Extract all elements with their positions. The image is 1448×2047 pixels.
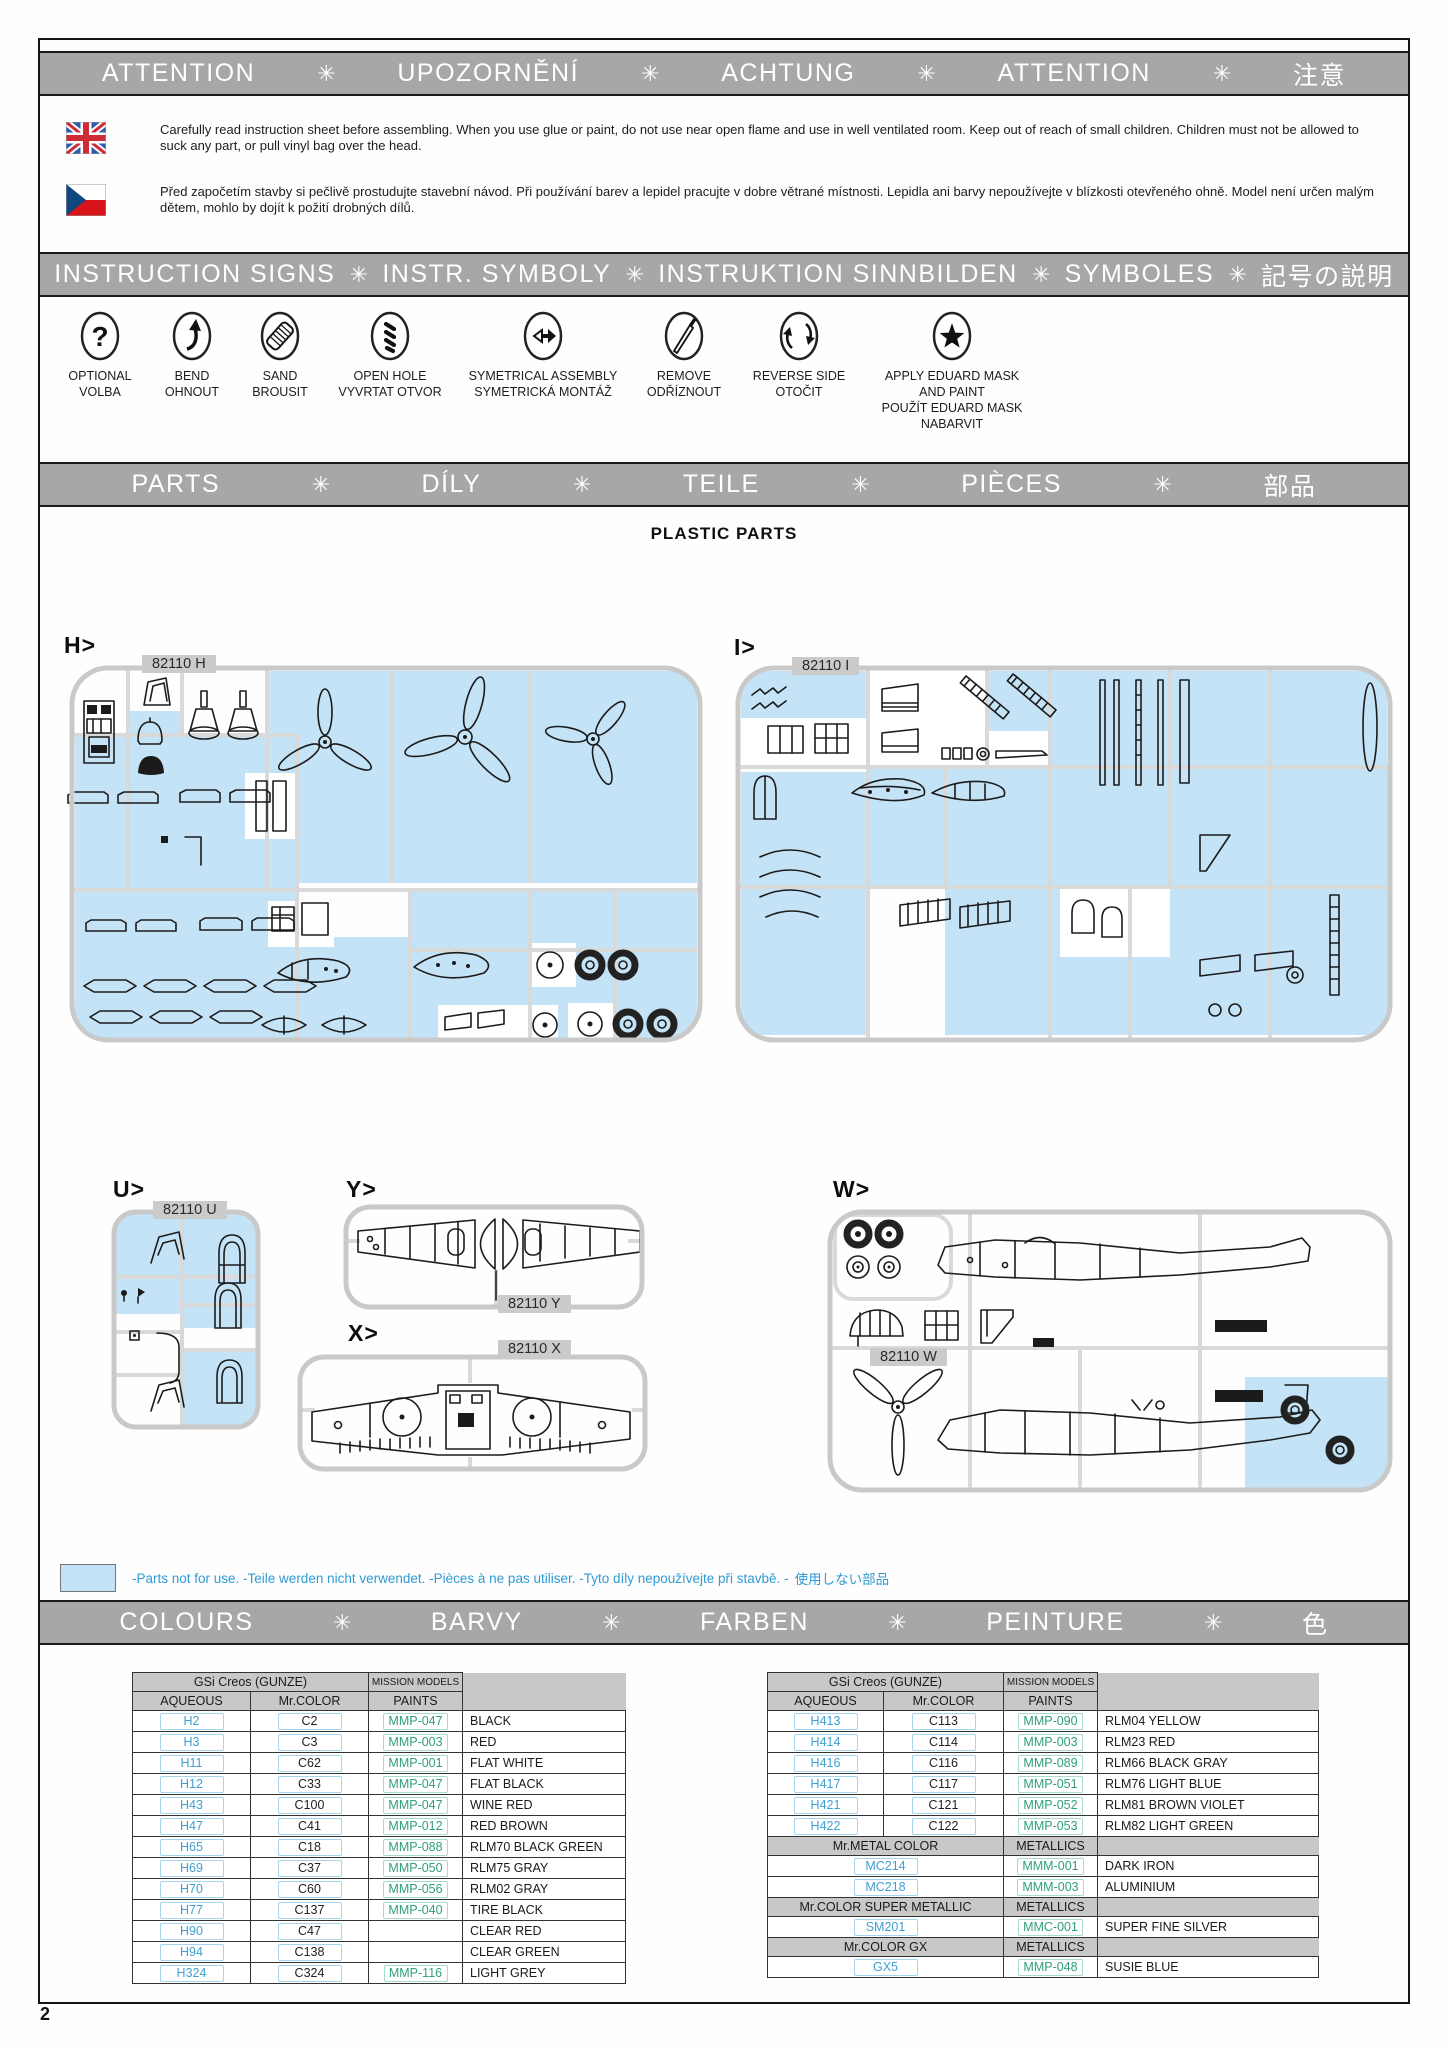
sprue-x-drawing <box>300 1357 645 1469</box>
paint-name: RED BROWN <box>463 1816 626 1837</box>
paint-row: MC214MMM-001DARK IRON <box>768 1856 1319 1877</box>
paint-name: SUSIE BLUE <box>1098 1957 1319 1978</box>
sign-bend: BENDOHNOUT <box>148 310 236 400</box>
sign-open-hole: OPEN HOLEVYVRTAT OTVOR <box>324 310 456 400</box>
paint-name: RLM81 BROWN VIOLET <box>1098 1795 1319 1816</box>
paint-row: H324C324MMP-116LIGHT GREY <box>133 1963 626 1984</box>
bar-label: PARTS <box>132 470 221 499</box>
paint-row: H3C3MMP-003RED <box>133 1732 626 1753</box>
paint-name: LIGHT GREY <box>463 1963 626 1984</box>
paint-row: H421C121MMP-052RLM81 BROWN VIOLET <box>768 1795 1319 1816</box>
paint-row: H65C18MMP-088RLM70 BLACK GREEN <box>133 1837 626 1858</box>
paint-code: C116 <box>912 1755 976 1772</box>
paint-row: H70C60MMP-056RLM02 GRAY <box>133 1879 626 1900</box>
paint-code: MC214 <box>854 1858 918 1875</box>
paint-code: H413 <box>794 1713 858 1730</box>
star-separator-icon: ✳ <box>1032 262 1050 288</box>
paint-code: C114 <box>912 1734 976 1751</box>
paint-code: H422 <box>794 1818 858 1835</box>
paint-name: SUPER FINE SILVER <box>1098 1917 1319 1938</box>
sprue-y-drawing <box>346 1207 642 1307</box>
table-group-header: GSi Creos (GUNZE) <box>133 1673 369 1692</box>
czech-flag-icon <box>66 184 106 221</box>
bar-label: 注意 <box>1293 56 1346 92</box>
star-separator-icon: ✳ <box>1228 262 1246 288</box>
sprue-chip-w: 82110 W <box>870 1348 947 1366</box>
paint-row: H12C33MMP-047FLAT BLACK <box>133 1774 626 1795</box>
paint-name: CLEAR GREEN <box>463 1942 626 1963</box>
paint-code: H416 <box>794 1755 858 1772</box>
section-brand: METALLICS <box>1004 1837 1098 1856</box>
paint-code: H417 <box>794 1776 858 1793</box>
paint-code: H90 <box>160 1923 224 1940</box>
paint-name: WINE RED <box>463 1795 626 1816</box>
paint-code: C121 <box>912 1797 976 1814</box>
symmetry-arrows-icon <box>523 310 563 362</box>
paint-code: MMP-003 <box>1018 1734 1082 1751</box>
bar-label: 記号の説明 <box>1261 257 1394 293</box>
paint-code: H414 <box>794 1734 858 1751</box>
sprue-letter-x: X> <box>348 1320 379 1347</box>
star-separator-icon: ✳ <box>333 1610 351 1636</box>
table-brand-header: MISSION MODELS <box>369 1673 463 1692</box>
star-separator-icon: ✳ <box>602 1610 620 1636</box>
paint-row: GX5MMP-048SUSIE BLUE <box>768 1957 1319 1978</box>
sign-symmetrical-assembly: SYMETRICAL ASSEMBLYSYMETRICKÁ MONTÁŽ <box>456 310 630 400</box>
paint-code: C113 <box>912 1713 976 1730</box>
sign-label: OPEN HOLEVYVRTAT OTVOR <box>338 368 441 400</box>
paint-code: MMP-089 <box>1018 1755 1082 1772</box>
paint-code: MMM-003 <box>1017 1879 1083 1896</box>
paint-code: C2 <box>278 1713 342 1730</box>
paint-code: C37 <box>278 1860 342 1877</box>
paint-row: H416C116MMP-089RLM66 BLACK GRAY <box>768 1753 1319 1774</box>
knife-icon <box>664 310 704 362</box>
paint-code: H324 <box>160 1965 224 1982</box>
paint-row: H43C100MMP-047WINE RED <box>133 1795 626 1816</box>
parts-note-text: -Parts not for use. -Teile werden nicht … <box>132 1571 789 1586</box>
paint-name: DARK IRON <box>1098 1856 1319 1877</box>
section-header: Mr.COLOR SUPER METALLIC <box>768 1898 1004 1917</box>
sign-label: SANDBROUSIT <box>252 368 308 400</box>
paint-name: RLM02 GRAY <box>463 1879 626 1900</box>
paint-name: ALUMINIUM <box>1098 1877 1319 1898</box>
sprue-letter-u: U> <box>113 1176 145 1203</box>
column-header: AQUEOUS <box>768 1692 884 1711</box>
star-separator-icon: ✳ <box>317 61 335 87</box>
paint-code: MC218 <box>854 1879 918 1896</box>
column-header: Mr.COLOR <box>884 1692 1004 1711</box>
paint-code: H3 <box>160 1734 224 1751</box>
paint-code: MMP-047 <box>383 1713 447 1730</box>
paint-row: H47C41MMP-012RED BROWN <box>133 1816 626 1837</box>
paint-row: H69C37MMP-050RLM75 GRAY <box>133 1858 626 1879</box>
parts-note-text-jp: 使用しない部品 <box>795 1568 890 1588</box>
paint-name: BLACK <box>463 1711 626 1732</box>
paint-code: MMP-047 <box>383 1797 447 1814</box>
paint-row: MC218MMM-003ALUMINIUM <box>768 1877 1319 1898</box>
paint-code: H421 <box>794 1797 858 1814</box>
paint-row: H11C62MMP-001FLAT WHITE <box>133 1753 626 1774</box>
star-separator-icon: ✳ <box>641 61 659 87</box>
bend-arrow-icon <box>172 310 212 362</box>
bar-label: PIÈCES <box>961 470 1062 499</box>
paint-name: CLEAR RED <box>463 1921 626 1942</box>
sign-label: OPTIONALVOLBA <box>68 368 131 400</box>
star-separator-icon: ✳ <box>350 262 368 288</box>
paint-row: H90C47CLEAR RED <box>133 1921 626 1942</box>
paint-code: H94 <box>160 1944 224 1961</box>
star-separator-icon: ✳ <box>888 1610 906 1636</box>
bar-label: 部品 <box>1263 467 1316 503</box>
sign-optional: ?OPTIONALVOLBA <box>52 310 148 400</box>
bar-label: BARVY <box>431 1608 523 1637</box>
sign-label: REVERSE SIDEOTOČIT <box>753 368 845 400</box>
paint-code: GX5 <box>854 1959 918 1976</box>
paint-row: H2C2MMP-047BLACK <box>133 1711 626 1732</box>
parts-note-row: -Parts not for use. -Teile werden nicht … <box>60 1564 889 1592</box>
paint-code: SM201 <box>854 1919 918 1936</box>
paint-code: C18 <box>278 1839 342 1856</box>
question-icon: ? <box>80 310 120 362</box>
uk-flag-icon <box>66 122 106 159</box>
paint-code: MMP-053 <box>1018 1818 1082 1835</box>
sign-apply-mask: APPLY EDUARD MASKAND PAINTPOUŽÍT EDUARD … <box>860 310 1044 432</box>
table-brand-header: MISSION MODELS <box>1004 1673 1098 1692</box>
paint-code: C137 <box>278 1902 342 1919</box>
paint-code: H70 <box>160 1881 224 1898</box>
sign-label: REMOVEODŘÍZNOUT <box>647 368 721 400</box>
section-brand: METALLICS <box>1004 1938 1098 1957</box>
sprue-letter-w: W> <box>833 1176 870 1203</box>
section-brand: METALLICS <box>1004 1898 1098 1917</box>
paint-row: H414C114MMP-003RLM23 RED <box>768 1732 1319 1753</box>
paint-code: H69 <box>160 1860 224 1877</box>
paint-table-left: GSi Creos (GUNZE)MISSION MODELSAQUEOUSMr… <box>132 1672 626 1984</box>
instruction-signs-bar: INSTRUCTION SIGNS✳INSTR. SYMBOLY✳INSTRUK… <box>40 252 1408 297</box>
column-header: PAINTS <box>1004 1692 1098 1711</box>
paint-code: C324 <box>278 1965 342 1982</box>
star-separator-icon: ✳ <box>626 262 644 288</box>
paint-code: C33 <box>278 1776 342 1793</box>
star-separator-icon: ✳ <box>1213 61 1231 87</box>
paint-name: RLM04 YELLOW <box>1098 1711 1319 1732</box>
parts-bar: PARTS✳DÍLY✳TEILE✳PIÈCES✳部品 <box>40 462 1408 507</box>
sign-sand: SANDBROUSIT <box>236 310 324 400</box>
sprue-chip-i: 82110 I <box>792 657 859 675</box>
paint-code: H43 <box>160 1797 224 1814</box>
colours-bar: COLOURS✳BARVY✳FARBEN✳PEINTURE✳色 <box>40 1600 1408 1645</box>
paint-code: MMP-040 <box>383 1902 447 1919</box>
paint-code: MMP-090 <box>1018 1713 1082 1730</box>
sign-label: APPLY EDUARD MASKAND PAINTPOUŽÍT EDUARD … <box>882 368 1023 432</box>
paint-code: C47 <box>278 1923 342 1940</box>
sprue-chip-h: 82110 H <box>142 655 216 673</box>
drill-icon <box>370 310 410 362</box>
paint-code: MMP-047 <box>383 1776 447 1793</box>
paint-row: SM201MMC-001SUPER FINE SILVER <box>768 1917 1319 1938</box>
paint-code: C117 <box>912 1776 976 1793</box>
sign-remove: REMOVEODŘÍZNOUT <box>630 310 738 400</box>
paint-code: C60 <box>278 1881 342 1898</box>
column-header: Mr.COLOR <box>251 1692 369 1711</box>
paint-name: RED <box>463 1732 626 1753</box>
paint-name: RLM82 LIGHT GREEN <box>1098 1816 1319 1837</box>
paint-row: H413C113MMP-090RLM04 YELLOW <box>768 1711 1319 1732</box>
paint-code: MMP-088 <box>383 1839 447 1856</box>
paint-row: H77C137MMP-040TIRE BLACK <box>133 1900 626 1921</box>
paint-code: C100 <box>278 1797 342 1814</box>
star-separator-icon: ✳ <box>917 61 935 87</box>
instruction-sheet-page: ATTENTION✳UPOZORNĚNÍ✳ACHTUNG✳ATTENTION✳注… <box>0 0 1448 2047</box>
paint-code: MMP-001 <box>383 1755 447 1772</box>
paint-code: MMP-012 <box>383 1818 447 1835</box>
paint-row: H417C117MMP-051RLM76 LIGHT BLUE <box>768 1774 1319 1795</box>
svg-text:?: ? <box>91 321 108 352</box>
star-separator-icon: ✳ <box>312 472 330 498</box>
paint-code: C3 <box>278 1734 342 1751</box>
paint-code: H11 <box>160 1755 224 1772</box>
paint-code: H12 <box>160 1776 224 1793</box>
bar-label: INSTR. SYMBOLY <box>382 260 611 289</box>
paint-code: C122 <box>912 1818 976 1835</box>
paint-name: RLM66 BLACK GRAY <box>1098 1753 1319 1774</box>
bar-label: ATTENTION <box>998 59 1151 88</box>
sprue-u-drawing <box>114 1212 258 1427</box>
sprue-i-drawing <box>738 668 1390 1040</box>
sign-label: SYMETRICAL ASSEMBLYSYMETRICKÁ MONTÁŽ <box>469 368 618 400</box>
paint-code: H65 <box>160 1839 224 1856</box>
star-separator-icon: ✳ <box>1153 472 1171 498</box>
paint-name: RLM23 RED <box>1098 1732 1319 1753</box>
section-header: Mr.COLOR GX <box>768 1938 1004 1957</box>
bar-label: FARBEN <box>700 1608 809 1637</box>
sanding-icon <box>260 310 300 362</box>
star-icon <box>932 310 972 362</box>
paint-row: H94C138CLEAR GREEN <box>133 1942 626 1963</box>
paint-code: MMP-003 <box>383 1734 447 1751</box>
paint-code: H47 <box>160 1818 224 1835</box>
paint-name: FLAT WHITE <box>463 1753 626 1774</box>
bar-label: 色 <box>1302 1605 1329 1641</box>
bar-label: INSTRUCTION SIGNS <box>54 260 335 289</box>
paint-code: MMP-116 <box>384 1965 448 1982</box>
paint-code: MMC-001 <box>1018 1919 1083 1936</box>
warning-text-czech: Před započetím stavby si pečlivě prostud… <box>160 184 1375 216</box>
star-separator-icon: ✳ <box>851 472 869 498</box>
paint-code: MMP-050 <box>383 1860 447 1877</box>
bar-label: ACHTUNG <box>721 59 855 88</box>
paint-name: RLM76 LIGHT BLUE <box>1098 1774 1319 1795</box>
star-separator-icon: ✳ <box>573 472 591 498</box>
paint-code: C138 <box>278 1944 342 1961</box>
paint-name: FLAT BLACK <box>463 1774 626 1795</box>
paint-name: TIRE BLACK <box>463 1900 626 1921</box>
not-for-use-swatch <box>60 1564 116 1592</box>
instruction-signs-row: ?OPTIONALVOLBABENDOHNOUTSANDBROUSITOPEN … <box>52 310 1072 432</box>
sprue-letter-h: H> <box>64 632 96 659</box>
sprue-chip-y: 82110 Y <box>498 1295 571 1313</box>
warning-text-english: Carefully read instruction sheet before … <box>160 122 1375 154</box>
attention-bar: ATTENTION✳UPOZORNĚNÍ✳ACHTUNG✳ATTENTION✳注… <box>40 51 1408 96</box>
plastic-parts-diagram <box>40 505 1408 1565</box>
paint-code: MMP-048 <box>1018 1959 1082 1976</box>
paint-code: MMP-056 <box>383 1881 447 1898</box>
bar-label: DÍLY <box>422 470 482 499</box>
paint-name: RLM70 BLACK GREEN <box>463 1837 626 1858</box>
rotate-arrows-icon <box>779 310 819 362</box>
paint-code: H77 <box>160 1902 224 1919</box>
paint-code: H2 <box>160 1713 224 1730</box>
paint-code: C62 <box>278 1755 342 1772</box>
bar-label: PEINTURE <box>986 1608 1124 1637</box>
table-group-header: GSi Creos (GUNZE) <box>768 1673 1004 1692</box>
section-header: Mr.METAL COLOR <box>768 1837 1004 1856</box>
bar-label: INSTRUKTION SINNBILDEN <box>658 260 1017 289</box>
paint-code: C41 <box>278 1818 342 1835</box>
paint-row: H422C122MMP-053RLM82 LIGHT GREEN <box>768 1816 1319 1837</box>
column-header: AQUEOUS <box>133 1692 251 1711</box>
bar-label: UPOZORNĚNÍ <box>397 59 579 88</box>
sprue-chip-u: 82110 U <box>153 1201 227 1219</box>
star-separator-icon: ✳ <box>1204 1610 1222 1636</box>
sprue-letter-y: Y> <box>346 1176 377 1203</box>
bar-label: COLOURS <box>119 1608 253 1637</box>
bar-label: ATTENTION <box>102 59 255 88</box>
sign-label: BENDOHNOUT <box>165 368 219 400</box>
paint-code: MMP-052 <box>1018 1797 1082 1814</box>
paint-name: RLM75 GRAY <box>463 1858 626 1879</box>
paint-code: MMM-001 <box>1017 1858 1083 1875</box>
sprue-letter-i: I> <box>734 634 756 661</box>
sign-reverse-side: REVERSE SIDEOTOČIT <box>738 310 860 400</box>
bar-label: SYMBOLES <box>1065 260 1215 289</box>
paint-code: MMP-051 <box>1018 1776 1082 1793</box>
sprue-h-drawing <box>68 662 700 1040</box>
bar-label: TEILE <box>683 470 760 499</box>
paint-table-right: GSi Creos (GUNZE)MISSION MODELSAQUEOUSMr… <box>767 1672 1319 1978</box>
column-header: PAINTS <box>369 1692 463 1711</box>
sprue-chip-x: 82110 X <box>498 1340 571 1358</box>
page-number: 2 <box>40 2004 50 2025</box>
